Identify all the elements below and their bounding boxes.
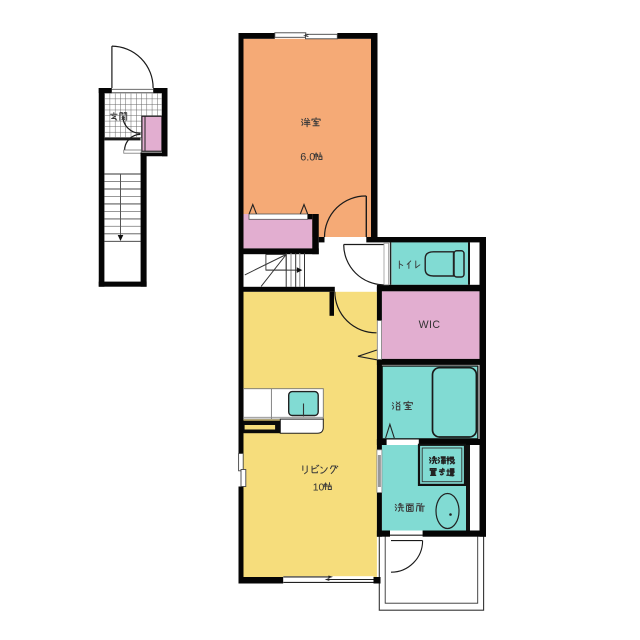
svg-text:WIC: WIC	[419, 319, 441, 331]
svg-text:6.0: 6.0	[300, 151, 315, 163]
svg-text:10: 10	[313, 482, 325, 493]
